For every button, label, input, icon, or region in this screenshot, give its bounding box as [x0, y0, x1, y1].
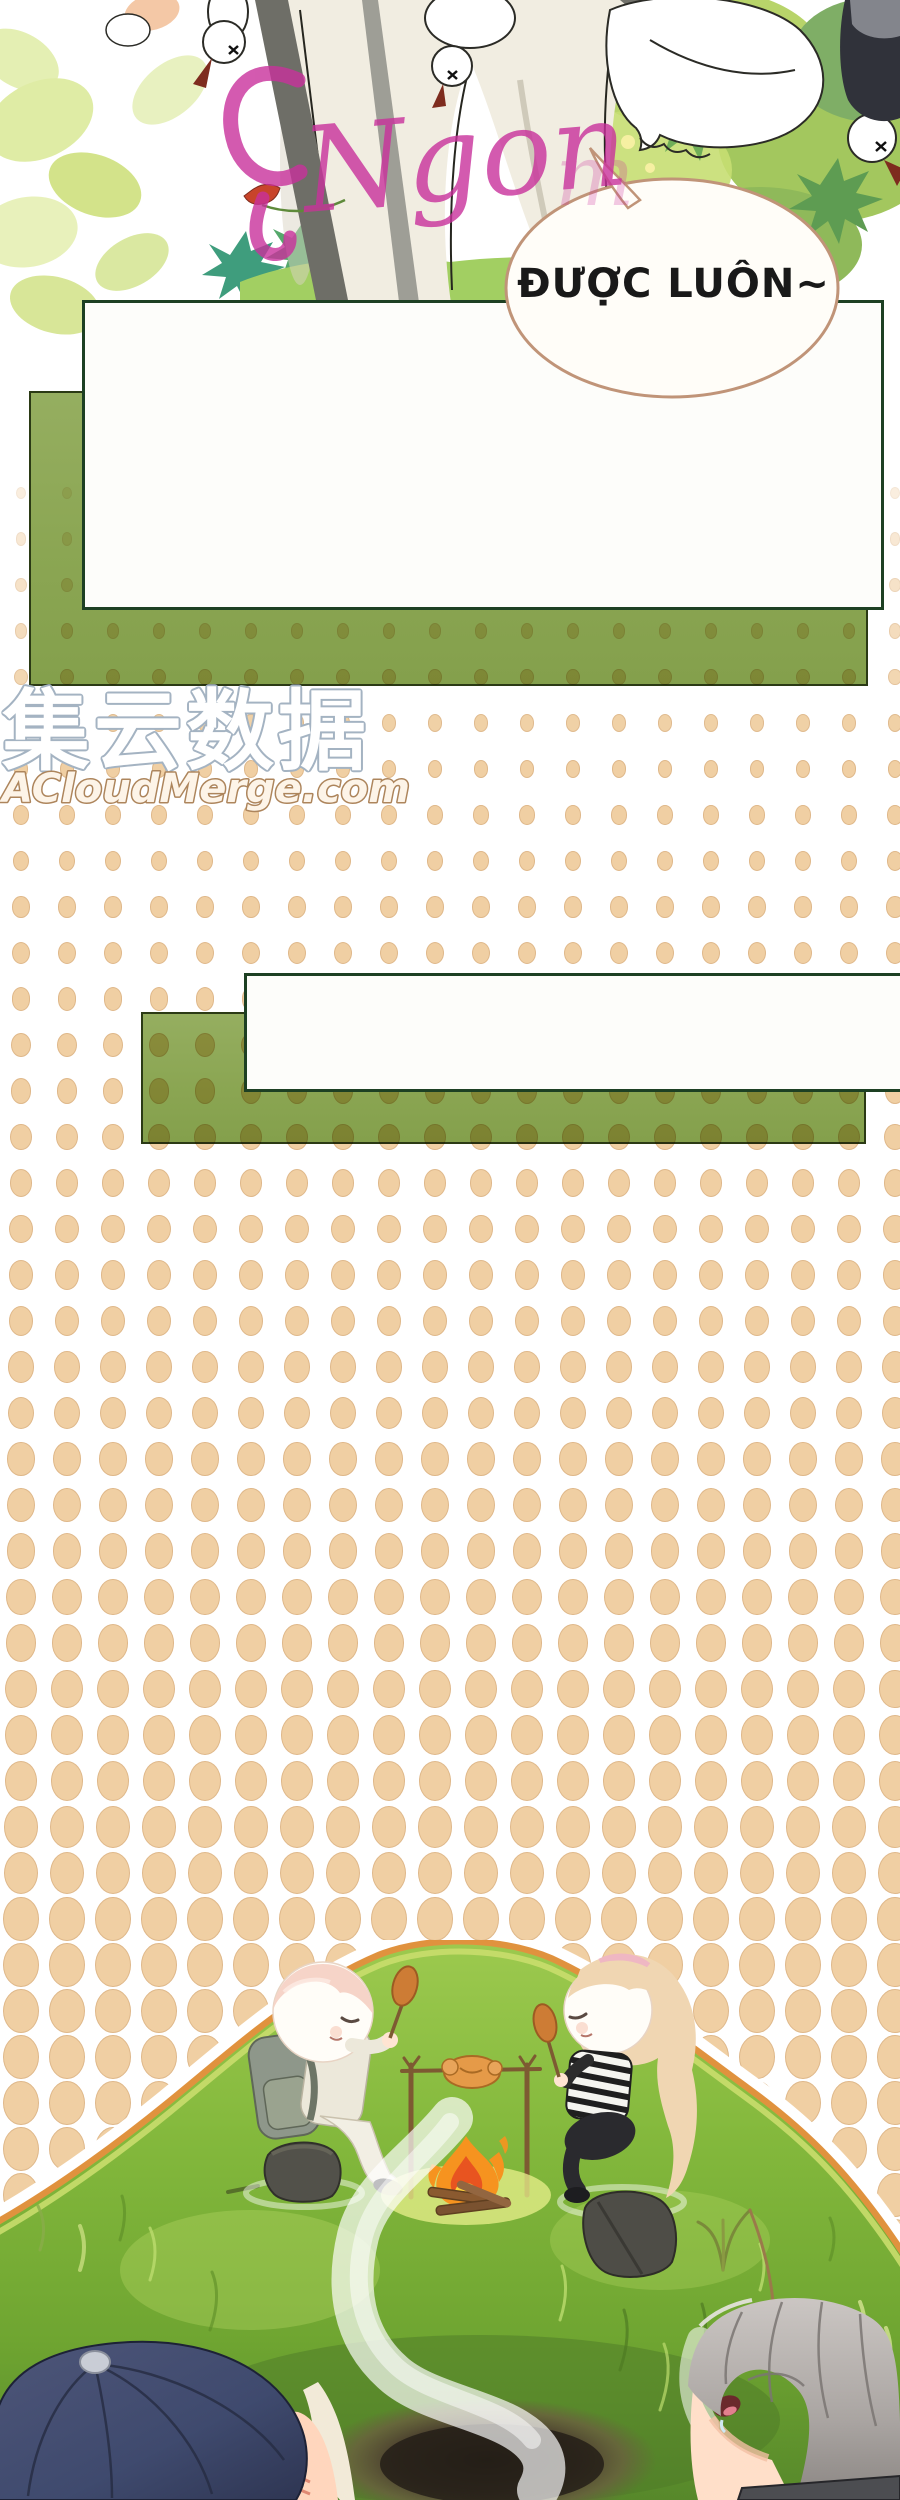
halftone-dot — [564, 896, 581, 917]
halftone-dot — [561, 1215, 584, 1243]
halftone-dot — [838, 1169, 860, 1196]
halftone-dot — [4, 1852, 38, 1895]
halftone-dot — [880, 1579, 900, 1615]
halftone-dot — [56, 1124, 77, 1150]
halftone-dot — [330, 1351, 355, 1382]
halftone-dot — [188, 1852, 222, 1895]
halftone-dot — [284, 1397, 310, 1429]
halftone-dot — [147, 1215, 170, 1243]
halftone-dot — [889, 578, 900, 592]
halftone-dot — [12, 896, 29, 917]
halftone-dot — [648, 1852, 682, 1895]
halftone-dot — [888, 760, 900, 778]
halftone-dot — [785, 1897, 820, 1941]
halftone-dot — [240, 1169, 262, 1196]
halftone-dot — [742, 1624, 772, 1661]
sleeve-cuff — [106, 14, 150, 46]
halftone-dot — [242, 896, 259, 917]
halftone-dot — [888, 669, 900, 685]
halftone-dot — [603, 1670, 634, 1708]
halftone-dot — [147, 1306, 172, 1336]
halftone-dot — [792, 1169, 814, 1196]
halftone-dot — [562, 1169, 584, 1196]
halftone-dot — [834, 1624, 864, 1661]
halftone-dot — [514, 1397, 540, 1429]
halftone-dot — [743, 1533, 772, 1568]
halftone-dot — [12, 987, 31, 1010]
halftone-dot — [421, 1488, 449, 1522]
halftone-dot — [192, 1397, 218, 1429]
halftone-dot — [282, 1579, 312, 1615]
halftone-dot — [3, 1897, 38, 1941]
halftone-dot — [51, 1670, 82, 1708]
halftone-dot — [330, 1397, 356, 1429]
halftone-dot — [235, 1715, 267, 1754]
halftone-dot — [239, 1306, 264, 1336]
halftone-dot — [473, 805, 489, 824]
halftone-dot — [560, 1351, 585, 1382]
halftone-dot — [102, 1124, 123, 1150]
halftone-dot — [141, 1897, 176, 1941]
halftone-dot — [836, 1397, 862, 1429]
halftone-dot — [327, 1761, 360, 1801]
halftone-dot — [558, 1579, 588, 1615]
halftone-dot — [4, 1806, 38, 1847]
halftone-dot — [878, 1806, 900, 1847]
halftone-dot — [565, 851, 582, 871]
halftone-dot — [49, 1897, 84, 1941]
halftone-dot — [97, 1670, 128, 1708]
halftone-dot — [605, 1488, 633, 1522]
halftone-dot — [704, 760, 719, 778]
halftone-dot — [142, 1806, 176, 1847]
halftone-dot — [745, 1260, 769, 1289]
halftone-dot — [603, 1761, 636, 1801]
halftone-dot — [328, 1624, 358, 1661]
halftone-dot — [237, 1533, 266, 1568]
halftone-dot — [750, 760, 765, 778]
site-watermark: 集云数据 ACloudMerge.com — [0, 630, 460, 830]
halftone-dot — [193, 1260, 217, 1289]
halftone-dot — [420, 1579, 450, 1615]
halftone-dot — [566, 760, 581, 778]
halftone-dot — [280, 1806, 314, 1847]
halftone-dot — [697, 1533, 726, 1568]
halftone-dot — [889, 623, 900, 638]
halftone-dot — [790, 1351, 815, 1382]
halftone-dot — [700, 1169, 722, 1196]
halftone-dot — [380, 942, 398, 964]
halftone-dot — [564, 942, 582, 964]
halftone-dot — [795, 805, 811, 824]
halftone-dot — [890, 532, 900, 545]
halftone-dot — [657, 805, 673, 824]
halftone-dot — [97, 1761, 130, 1801]
halftone-dot — [373, 1761, 406, 1801]
halftone-dot — [513, 1533, 542, 1568]
halftone-dot — [422, 1351, 447, 1382]
halftone-dot — [146, 1351, 171, 1382]
halftone-dot — [796, 714, 810, 731]
halftone-dot — [602, 1806, 636, 1847]
halftone-dot — [884, 1124, 900, 1150]
halftone-dot — [651, 1442, 678, 1475]
halftone-dot — [189, 1715, 221, 1754]
halftone-dot — [605, 1533, 634, 1568]
halftone-dot — [104, 896, 121, 917]
halftone-dot — [375, 1442, 402, 1475]
halftone-dot — [187, 1897, 222, 1941]
halftone-dot — [607, 1215, 630, 1243]
halftone-dot — [427, 851, 444, 871]
halftone-dot — [879, 1670, 900, 1708]
halftone-dot — [698, 1397, 724, 1429]
halftone-dot — [189, 1761, 222, 1801]
halftone-dot — [194, 1169, 216, 1196]
halftone-dot — [239, 1215, 262, 1243]
halftone-dot — [789, 1488, 817, 1522]
halftone-dot — [510, 1806, 544, 1847]
halftone-dot — [12, 942, 30, 964]
halftone-dot — [469, 1215, 492, 1243]
halftone-dot — [474, 760, 489, 778]
halftone-dot — [99, 1533, 128, 1568]
halftone-dot — [650, 1624, 680, 1661]
halftone-dot — [423, 1306, 448, 1336]
halftone-dot — [743, 1442, 770, 1475]
halftone-dot — [7, 1488, 35, 1522]
halftone-dot — [878, 1852, 900, 1895]
girl-blush — [576, 2022, 588, 2034]
halftone-dot — [419, 1761, 452, 1801]
halftone-dot — [560, 1397, 586, 1429]
halftone-dot — [99, 1488, 127, 1522]
halftone-dot — [656, 896, 673, 917]
halftone-dot — [556, 1852, 590, 1895]
halftone-dot — [601, 1897, 636, 1941]
halftone-dot — [607, 1260, 631, 1289]
comic-page: Ngon m ĐƯỢC LUÔN~ 集云数据 ACloudMerge.com — [0, 0, 900, 2500]
halftone-dot — [557, 1715, 589, 1754]
halftone-dot — [652, 1351, 677, 1382]
halftone-dot — [881, 1488, 900, 1522]
halftone-dot — [426, 896, 443, 917]
halftone-dot — [51, 1761, 84, 1801]
halftone-dot — [237, 1442, 264, 1475]
halftone-dot — [832, 1806, 866, 1847]
halftone-dot — [5, 1761, 38, 1801]
halftone-dot — [236, 1579, 266, 1615]
halftone-dot — [790, 1397, 816, 1429]
halftone-dot — [419, 1715, 451, 1754]
halftone-dot — [58, 987, 77, 1010]
halftone-dot — [196, 896, 213, 917]
halftone-dot — [465, 1670, 496, 1708]
halftone-dot — [512, 1579, 542, 1615]
halftone-dot — [883, 1260, 900, 1289]
halftone-dot — [142, 1852, 176, 1895]
halftone-dot — [658, 714, 672, 731]
halftone-dot — [417, 1897, 452, 1941]
halftone-dot — [377, 1306, 402, 1336]
halftone-dot — [608, 1169, 630, 1196]
halftone-dot — [191, 1533, 220, 1568]
halftone-dot — [288, 942, 306, 964]
halftone-dot — [147, 1260, 171, 1289]
halftone-dot — [602, 1852, 636, 1895]
halftone-dot — [469, 1260, 493, 1289]
halftone-dot — [880, 1624, 900, 1661]
halftone-dot — [837, 1306, 862, 1336]
halftone-dot — [285, 1260, 309, 1289]
halftone-dot — [283, 1442, 310, 1475]
halftone-dot — [145, 1533, 174, 1568]
halftone-dot — [886, 896, 900, 917]
halftone-dot — [748, 896, 765, 917]
halftone-dot — [148, 1169, 170, 1196]
halftone-dot — [377, 1215, 400, 1243]
halftone-dot — [612, 714, 626, 731]
halftone-dot — [749, 851, 766, 871]
halftone-dot — [463, 1897, 498, 1941]
halftone-dot — [58, 896, 75, 917]
halftone-dot — [651, 1533, 680, 1568]
halftone-dot — [374, 1579, 404, 1615]
halftone-dot — [606, 1351, 631, 1382]
halftone-dot — [741, 1715, 773, 1754]
halftone-dot — [279, 1897, 314, 1941]
halftone-dot — [420, 1624, 450, 1661]
halftone-dot — [54, 1397, 80, 1429]
halftone-dot — [98, 1579, 128, 1615]
halftone-dot — [654, 1169, 676, 1196]
halftone-dot — [374, 1624, 404, 1661]
halftone-dot — [6, 1624, 36, 1661]
halftone-dot — [197, 851, 214, 871]
halftone-dot — [143, 1670, 174, 1708]
halftone-dot — [890, 487, 900, 499]
halftone-dot — [327, 1670, 358, 1708]
leaf-cluster-left — [0, 16, 220, 344]
halftone-dot — [650, 1579, 680, 1615]
halftone-dot — [887, 851, 900, 871]
halftone-dot — [150, 896, 167, 917]
halftone-dot — [695, 1670, 726, 1708]
halftone-dot — [789, 1442, 816, 1475]
halftone-dot — [558, 1624, 588, 1661]
halftone-dot — [465, 1761, 498, 1801]
halftone-dot — [518, 896, 535, 917]
halftone-dot — [423, 1260, 447, 1289]
halftone-dot — [842, 760, 857, 778]
halftone-dot — [649, 1715, 681, 1754]
halftone-dot — [331, 1306, 356, 1336]
halftone-dot — [96, 1852, 130, 1895]
halftone-dot — [795, 851, 812, 871]
halftone-dot — [474, 714, 488, 731]
halftone-dot — [745, 1306, 770, 1336]
halftone-dot — [8, 1351, 33, 1382]
halftone-dot — [696, 1624, 726, 1661]
halftone-dot — [796, 760, 811, 778]
halftone-dot — [653, 1306, 678, 1336]
halftone-dot — [888, 714, 900, 731]
halftone-dot — [612, 760, 627, 778]
halftone-dot — [242, 942, 260, 964]
halftone-dot — [281, 1670, 312, 1708]
halftone-dot — [515, 1215, 538, 1243]
halftone-dot — [513, 1442, 540, 1475]
halftone-dot — [786, 1852, 820, 1895]
halftone-dot — [329, 1533, 358, 1568]
halftone-dot — [103, 1078, 124, 1103]
halftone-dot — [373, 1715, 405, 1754]
halftone-dot — [282, 1624, 312, 1661]
halftone-dot — [651, 1488, 679, 1522]
halftone-dot — [284, 1351, 309, 1382]
halftone-dot — [833, 1670, 864, 1708]
halftone-dot — [519, 851, 536, 871]
halftone-dot — [604, 1624, 634, 1661]
halftone-dot — [879, 1761, 900, 1801]
halftone-dot — [95, 1897, 130, 1941]
halftone-dot — [841, 805, 857, 824]
halftone-dot — [511, 1670, 542, 1708]
halftone-dot — [741, 1670, 772, 1708]
halftone-dot — [750, 714, 764, 731]
halftone-dot — [511, 1761, 544, 1801]
halftone-dot — [699, 1260, 723, 1289]
halftone-dot — [653, 1260, 677, 1289]
halftone-dot — [57, 1078, 78, 1103]
halftone-dot — [289, 851, 306, 871]
halftone-dot — [520, 714, 534, 731]
halftone-dot — [877, 1897, 900, 1941]
halftone-dot — [832, 1852, 866, 1895]
halftone-dot — [5, 1670, 36, 1708]
halftone-dot — [331, 1215, 354, 1243]
halftone-dot — [283, 1488, 311, 1522]
halftone-dot — [748, 942, 766, 964]
halftone-dot — [840, 942, 858, 964]
halftone-dot — [468, 1397, 494, 1429]
halftone-dot — [234, 1806, 268, 1847]
halftone-dot — [695, 1761, 728, 1801]
halftone-dot — [467, 1488, 495, 1522]
halftone-dot — [466, 1579, 496, 1615]
halftone-dot — [703, 805, 719, 824]
halftone-dot — [424, 1169, 446, 1196]
halftone-dot — [104, 942, 122, 964]
halftone-dot — [243, 851, 260, 871]
halftone-dot — [196, 987, 215, 1010]
speech-bubble-text: ĐƯỢC LUÔN~ — [516, 262, 831, 306]
halftone-dot — [516, 1169, 538, 1196]
halftone-dot — [840, 896, 857, 917]
halftone-dot — [328, 1579, 358, 1615]
halftone-dot — [472, 896, 489, 917]
halftone-dot — [421, 1442, 448, 1475]
halftone-dot — [513, 1488, 541, 1522]
halftone-dot — [605, 1442, 632, 1475]
halftone-dot — [327, 1715, 359, 1754]
halftone-dot — [468, 1351, 493, 1382]
halftone-dot — [52, 1624, 82, 1661]
halftone-dot — [611, 851, 628, 871]
site-watermark-en: ACloudMerge.com — [0, 766, 410, 812]
halftone-dot — [561, 1260, 585, 1289]
halftone-dot — [418, 1852, 452, 1895]
halftone-dot — [7, 1442, 34, 1475]
halftone-dot — [329, 1442, 356, 1475]
halftone-dot — [426, 942, 444, 964]
halftone-dot — [50, 1852, 84, 1895]
halftone-dot — [695, 1715, 727, 1754]
halftone-dot — [191, 1488, 219, 1522]
halftone-dot — [749, 805, 765, 824]
halftone-dot — [881, 1533, 900, 1568]
halftone-dot — [239, 1260, 263, 1289]
halftone-dot — [53, 1442, 80, 1475]
halftone-dot — [647, 1897, 682, 1941]
halftone-dot — [190, 1624, 220, 1661]
halftone-dot — [11, 1033, 31, 1057]
halftone-dot — [99, 1442, 126, 1475]
halftone-dot — [519, 805, 535, 824]
halftone-dot — [559, 1488, 587, 1522]
halftone-dot — [56, 1169, 78, 1196]
halftone-dot — [658, 760, 673, 778]
halftone-dot — [193, 1306, 218, 1336]
halftone-dot — [418, 1806, 452, 1847]
halftone-dot — [887, 805, 900, 824]
halftone-dot — [7, 1533, 36, 1568]
halftone-dot — [192, 1351, 217, 1382]
halftone-dot — [607, 1306, 632, 1336]
halftone-dot — [883, 1215, 900, 1243]
halftone-dot — [53, 1488, 81, 1522]
halftone-dot — [837, 1260, 861, 1289]
halftone-dot — [879, 1715, 900, 1754]
halftone-dot — [237, 1488, 265, 1522]
halftone-dot — [610, 942, 628, 964]
halftone-dot — [372, 1852, 406, 1895]
halftone-dot — [470, 1169, 492, 1196]
halftone-dot — [699, 1306, 724, 1336]
halftone-dot — [50, 1806, 84, 1847]
halftone-dot — [606, 1397, 632, 1429]
halftone-dot — [518, 942, 536, 964]
halftone-dot — [326, 1852, 360, 1895]
halftone-dot — [511, 1715, 543, 1754]
halftone-dot — [794, 896, 811, 917]
halftone-dot — [377, 1260, 401, 1289]
roasting-chicken — [442, 2056, 502, 2088]
girl-shin — [571, 2145, 578, 2190]
halftone-dot — [744, 1397, 770, 1429]
halftone-dot — [378, 1169, 400, 1196]
halftone-dot — [334, 942, 352, 964]
halftone-dot — [696, 1579, 726, 1615]
halftone-dot — [467, 1442, 494, 1475]
halftone-dot — [144, 1579, 174, 1615]
halftone-dot — [100, 1397, 126, 1429]
girl-hand — [554, 2073, 568, 2087]
halftone-dot — [96, 1806, 130, 1847]
halftone-dot — [883, 1306, 900, 1336]
halftone-dot — [196, 942, 214, 964]
halftone-dot — [101, 1215, 124, 1243]
